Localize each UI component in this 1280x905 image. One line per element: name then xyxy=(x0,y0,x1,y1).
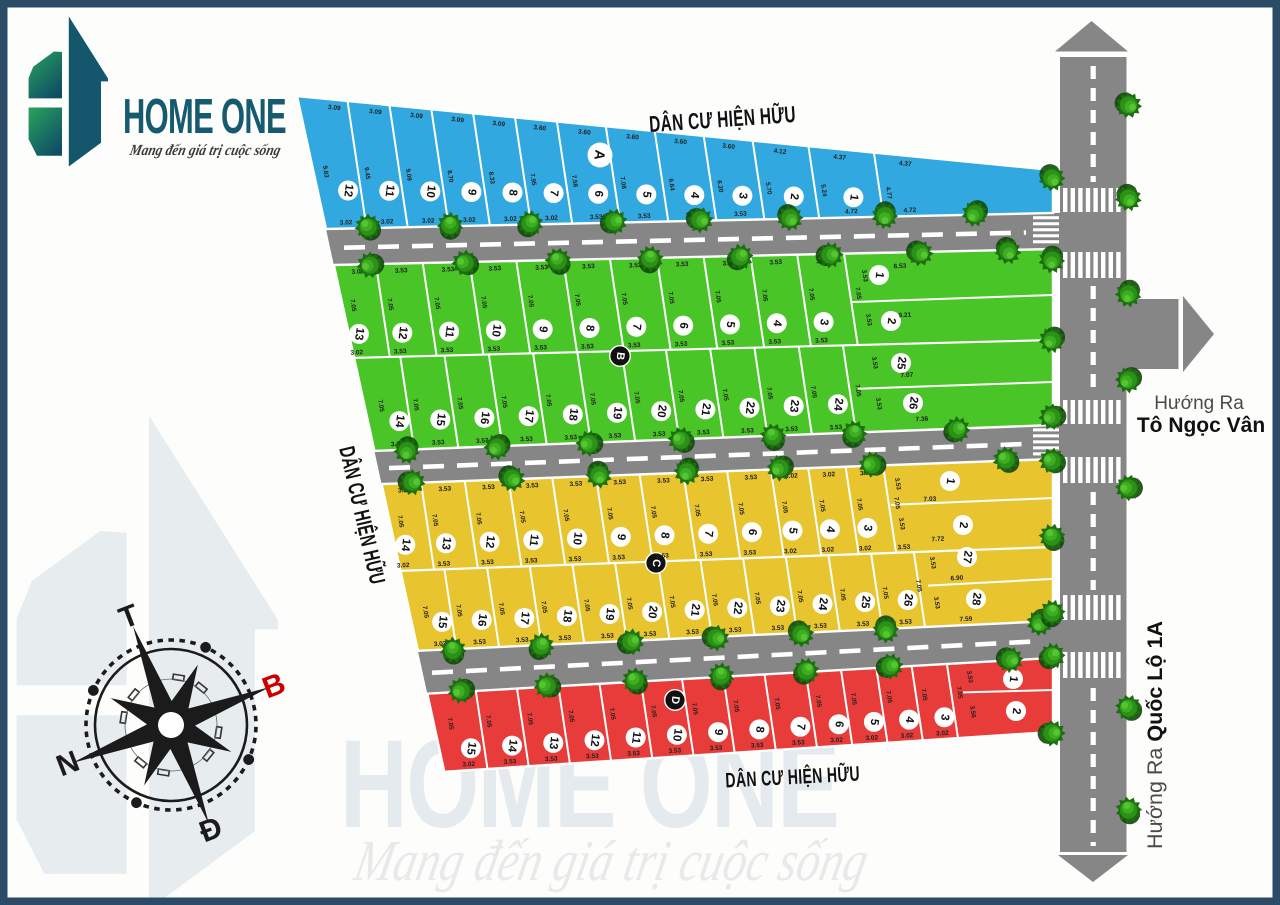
svg-text:3.60: 3.60 xyxy=(626,133,640,141)
svg-text:7.72: 7.72 xyxy=(931,536,944,544)
svg-text:12: 12 xyxy=(588,733,601,747)
svg-text:18: 18 xyxy=(560,609,574,624)
svg-text:3.02: 3.02 xyxy=(901,732,914,740)
svg-text:Mang đến giá trị cuộc sống: Mang đến giá trị cuộc sống xyxy=(349,830,874,893)
svg-text:3.02: 3.02 xyxy=(463,217,476,224)
svg-text:3.53: 3.53 xyxy=(582,263,595,271)
svg-text:Hướng Ra Quốc Lộ 1A: Hướng Ra Quốc Lộ 1A xyxy=(1143,621,1167,849)
svg-text:3.09: 3.09 xyxy=(492,120,506,128)
svg-text:3.53: 3.53 xyxy=(545,755,558,763)
svg-text:3.53: 3.53 xyxy=(638,213,651,220)
svg-text:13: 13 xyxy=(352,327,365,341)
svg-text:3.60: 3.60 xyxy=(674,138,688,146)
svg-text:13: 13 xyxy=(547,736,560,750)
svg-text:4.37: 4.37 xyxy=(898,160,912,168)
svg-text:16: 16 xyxy=(478,411,491,425)
svg-text:4.12: 4.12 xyxy=(773,148,787,156)
svg-text:14: 14 xyxy=(505,739,519,754)
svg-text:3.53: 3.53 xyxy=(656,552,669,560)
svg-text:3.53: 3.53 xyxy=(676,261,689,269)
svg-text:7.36: 7.36 xyxy=(915,416,928,424)
svg-text:3.53: 3.53 xyxy=(481,559,494,567)
svg-text:10: 10 xyxy=(489,323,502,337)
svg-text:3.53: 3.53 xyxy=(438,485,451,493)
svg-text:3.53: 3.53 xyxy=(897,544,910,552)
svg-text:3.53: 3.53 xyxy=(487,346,500,354)
svg-text:3.53: 3.53 xyxy=(395,267,408,275)
svg-text:13: 13 xyxy=(439,536,452,550)
svg-text:26: 26 xyxy=(906,396,919,410)
svg-text:3.53: 3.53 xyxy=(721,339,734,347)
svg-text:3.53: 3.53 xyxy=(482,484,495,492)
svg-text:3.53: 3.53 xyxy=(829,424,842,432)
svg-text:19: 19 xyxy=(610,406,623,420)
svg-text:Tô Ngọc Vân: Tô Ngọc Vân xyxy=(1137,414,1265,437)
svg-text:3.53: 3.53 xyxy=(601,633,614,641)
svg-text:23: 23 xyxy=(773,599,786,613)
svg-text:3.53: 3.53 xyxy=(785,426,798,434)
svg-text:3.53: 3.53 xyxy=(668,747,681,755)
svg-text:B: B xyxy=(614,351,627,360)
svg-text:3.53: 3.53 xyxy=(751,742,764,750)
svg-text:3.53: 3.53 xyxy=(535,264,548,272)
svg-text:17: 17 xyxy=(522,409,535,423)
svg-text:21: 21 xyxy=(688,603,702,618)
svg-text:3.53: 3.53 xyxy=(441,347,454,355)
svg-text:Mang đến giá trị cuộc sống: Mang đến giá trị cuộc sống xyxy=(127,142,282,159)
svg-text:3.02: 3.02 xyxy=(784,548,797,556)
svg-text:3.02: 3.02 xyxy=(381,218,394,225)
svg-text:3.53: 3.53 xyxy=(741,427,754,435)
svg-text:3.53: 3.53 xyxy=(534,344,547,352)
svg-text:3.09: 3.09 xyxy=(328,104,342,112)
svg-text:3.02: 3.02 xyxy=(936,730,949,738)
svg-text:11: 11 xyxy=(629,731,642,745)
svg-text:7.59: 7.59 xyxy=(959,616,972,624)
svg-text:4.72: 4.72 xyxy=(904,207,917,214)
svg-text:3.53: 3.53 xyxy=(743,549,756,557)
svg-text:25: 25 xyxy=(894,356,908,371)
svg-text:3.53: 3.53 xyxy=(769,259,782,267)
svg-text:3.53: 3.53 xyxy=(569,480,582,488)
svg-text:15: 15 xyxy=(433,412,447,427)
svg-text:3.09: 3.09 xyxy=(410,112,424,120)
svg-text:3.53: 3.53 xyxy=(734,211,747,218)
svg-text:27: 27 xyxy=(960,550,973,564)
svg-text:14: 14 xyxy=(398,538,412,553)
svg-text:A: A xyxy=(591,149,608,161)
svg-text:D: D xyxy=(669,695,682,704)
svg-text:26: 26 xyxy=(901,593,914,607)
svg-text:18: 18 xyxy=(566,407,580,422)
svg-text:4.37: 4.37 xyxy=(833,154,847,162)
svg-text:7.07: 7.07 xyxy=(900,372,913,380)
svg-text:3.53: 3.53 xyxy=(701,476,714,484)
svg-text:14: 14 xyxy=(392,414,406,429)
svg-text:3.02: 3.02 xyxy=(822,471,835,479)
svg-text:22: 22 xyxy=(743,401,756,415)
svg-text:16: 16 xyxy=(475,613,488,627)
svg-text:11: 11 xyxy=(382,184,395,198)
svg-text:3.53: 3.53 xyxy=(729,627,742,635)
svg-text:3.53: 3.53 xyxy=(394,348,407,356)
svg-text:3.02: 3.02 xyxy=(350,349,363,357)
svg-text:11: 11 xyxy=(442,325,455,339)
svg-text:3.53: 3.53 xyxy=(558,635,571,643)
svg-text:3.53: 3.53 xyxy=(564,434,577,442)
svg-text:25: 25 xyxy=(858,595,872,610)
svg-text:12: 12 xyxy=(483,535,496,549)
svg-text:12: 12 xyxy=(341,183,354,197)
svg-text:3.53: 3.53 xyxy=(899,619,912,627)
svg-text:22: 22 xyxy=(731,601,744,615)
svg-text:15: 15 xyxy=(464,741,478,756)
svg-text:3.53: 3.53 xyxy=(608,432,621,440)
svg-text:11: 11 xyxy=(527,533,540,547)
svg-text:3.53: 3.53 xyxy=(653,431,666,439)
svg-text:3.53: 3.53 xyxy=(473,639,486,647)
svg-text:24: 24 xyxy=(831,397,845,412)
svg-text:3.53: 3.53 xyxy=(442,266,455,274)
svg-text:10: 10 xyxy=(670,728,683,742)
svg-text:19: 19 xyxy=(603,607,616,621)
svg-text:9.21: 9.21 xyxy=(898,312,911,320)
svg-text:3.02: 3.02 xyxy=(340,219,353,226)
svg-text:10: 10 xyxy=(570,531,583,545)
svg-text:3.53: 3.53 xyxy=(657,477,670,485)
svg-text:Hướng Ra: Hướng Ra xyxy=(1154,393,1244,414)
svg-text:3.02: 3.02 xyxy=(830,737,843,745)
svg-text:3.53: 3.53 xyxy=(437,560,450,568)
svg-text:3.60: 3.60 xyxy=(578,128,592,136)
svg-text:3.53: 3.53 xyxy=(568,556,581,564)
svg-text:3.53: 3.53 xyxy=(612,554,625,562)
svg-text:3.53: 3.53 xyxy=(520,436,533,444)
svg-text:3.53: 3.53 xyxy=(504,758,517,766)
svg-text:3.53: 3.53 xyxy=(488,265,501,273)
svg-text:8.53: 8.53 xyxy=(893,263,906,271)
svg-text:3.53: 3.53 xyxy=(697,429,710,437)
svg-text:21: 21 xyxy=(699,402,713,417)
svg-text:20: 20 xyxy=(654,404,667,418)
svg-text:3.53: 3.53 xyxy=(815,337,828,345)
svg-text:28: 28 xyxy=(969,592,983,607)
svg-text:3.53: 3.53 xyxy=(644,631,657,639)
svg-text:3.53: 3.53 xyxy=(792,739,805,747)
svg-text:3.09: 3.09 xyxy=(451,116,465,124)
svg-text:6.90: 6.90 xyxy=(950,575,963,583)
svg-text:3.02: 3.02 xyxy=(821,546,834,554)
svg-text:17: 17 xyxy=(518,611,531,625)
svg-text:HOME ONE: HOME ONE xyxy=(123,89,286,144)
svg-text:3.53: 3.53 xyxy=(710,745,723,753)
svg-text:3.02: 3.02 xyxy=(422,217,435,224)
svg-text:3.60: 3.60 xyxy=(722,143,736,151)
svg-text:3.53: 3.53 xyxy=(581,343,594,351)
svg-text:3.02: 3.02 xyxy=(397,562,410,570)
svg-text:3.53: 3.53 xyxy=(586,753,599,761)
svg-text:15: 15 xyxy=(435,615,449,630)
svg-text:12: 12 xyxy=(396,326,409,340)
svg-text:3.53: 3.53 xyxy=(814,623,827,631)
svg-text:3.53: 3.53 xyxy=(627,750,640,758)
svg-text:3.53: 3.53 xyxy=(744,474,757,482)
svg-text:3.53: 3.53 xyxy=(768,338,781,346)
svg-text:3.53: 3.53 xyxy=(525,557,538,565)
svg-text:3.02: 3.02 xyxy=(462,761,475,769)
svg-text:3.53: 3.53 xyxy=(613,479,626,487)
svg-text:3.53: 3.53 xyxy=(771,625,784,633)
svg-text:4.72: 4.72 xyxy=(845,208,858,215)
svg-text:10: 10 xyxy=(424,184,437,198)
svg-text:23: 23 xyxy=(787,399,800,413)
svg-text:3.02: 3.02 xyxy=(504,216,517,223)
svg-text:3.53: 3.53 xyxy=(526,482,539,490)
svg-text:3.53: 3.53 xyxy=(516,637,529,645)
svg-text:20: 20 xyxy=(645,605,658,619)
svg-text:3.02: 3.02 xyxy=(865,734,878,742)
svg-text:3.53: 3.53 xyxy=(700,551,713,559)
svg-text:3.53: 3.53 xyxy=(857,621,870,629)
svg-text:3.53: 3.53 xyxy=(675,341,688,349)
svg-text:3.53: 3.53 xyxy=(432,439,445,447)
svg-text:3.53: 3.53 xyxy=(686,629,699,637)
svg-text:7.03: 7.03 xyxy=(923,496,936,504)
svg-text:24: 24 xyxy=(816,597,830,612)
svg-text:3.02: 3.02 xyxy=(859,545,872,553)
svg-text:3.60: 3.60 xyxy=(533,124,547,132)
svg-text:3.53: 3.53 xyxy=(628,342,641,350)
svg-text:3.02: 3.02 xyxy=(545,215,558,222)
svg-text:3.09: 3.09 xyxy=(369,108,383,116)
